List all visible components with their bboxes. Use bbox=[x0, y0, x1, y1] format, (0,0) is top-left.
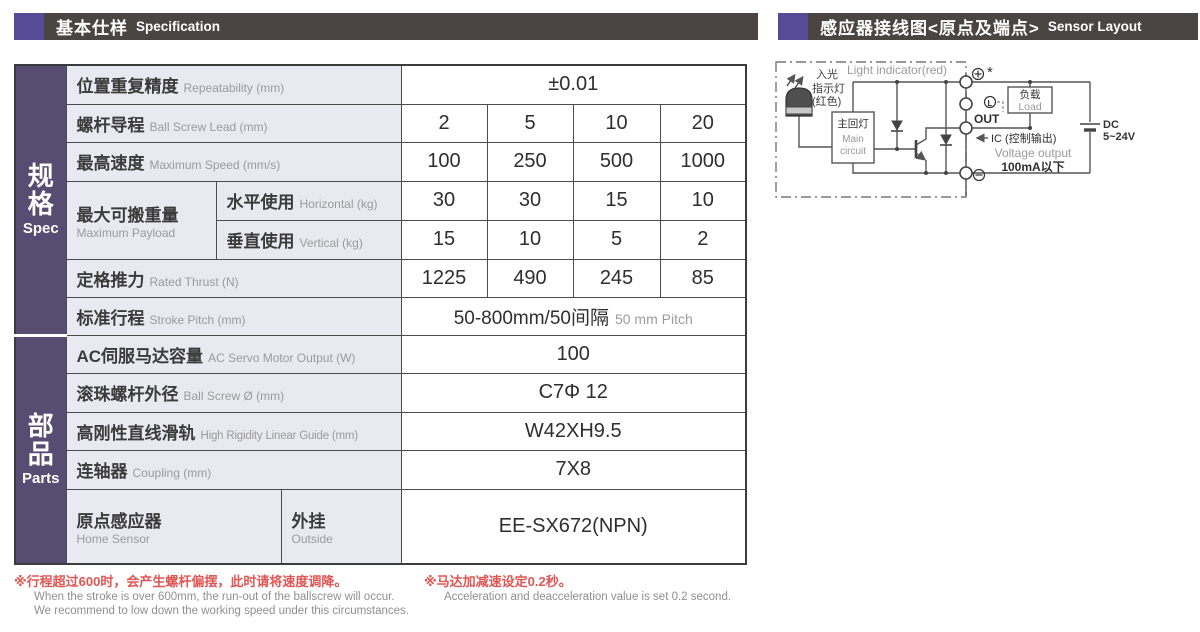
led-label-line1: 入光 bbox=[816, 67, 838, 81]
header-title-zh: 感应器接线图<原点及端点> bbox=[820, 14, 1040, 39]
specification-table-wrap: 规格 Spec 位置重复精度Repeatability (mm) ±0.01 螺… bbox=[14, 64, 747, 565]
label-zh: 位置重复精度 bbox=[77, 77, 179, 96]
value-stroke: 50-800mm/50间隔50 mm Pitch bbox=[401, 297, 746, 335]
label-zh: AC伺服马达容量 bbox=[77, 347, 204, 366]
value-cell: 245 bbox=[573, 259, 660, 297]
sidebar-parts: 部品 Parts bbox=[15, 335, 66, 564]
light-indicator-label: Light indicator(red) bbox=[847, 63, 947, 77]
row-label-max-speed: 最高速度Maximum Speed (mm/s) bbox=[66, 142, 401, 181]
terminal-plus bbox=[960, 76, 972, 88]
value-home-sensor: EE-SX672(NPN) bbox=[401, 489, 746, 564]
led-label-line2: 指示灯 bbox=[812, 81, 845, 95]
stroke-value-en: 50 mm Pitch bbox=[615, 311, 693, 327]
sidebar-spec: 规格 Spec bbox=[15, 65, 66, 335]
label-zh: 螺杆导程 bbox=[77, 116, 145, 135]
terminal-minus bbox=[960, 167, 972, 179]
label-zh: 外挂 bbox=[292, 507, 396, 532]
header-title-zh: 基本仕样 bbox=[56, 14, 128, 39]
label-en: Outside bbox=[292, 532, 401, 546]
main-circuit-box: 主回灯 Main circuit bbox=[832, 112, 874, 163]
purple-accent-square bbox=[14, 13, 44, 40]
footnote-right-en: Acceleration and deacceleration value is… bbox=[444, 590, 731, 604]
footnote-right-red: ※马达加减速设定0.2秒。 bbox=[424, 573, 731, 590]
label-zh: 滚珠螺杆外径 bbox=[77, 385, 179, 404]
label-zh: 高刚性直线滑轨 bbox=[77, 424, 196, 443]
label-en: Home Sensor bbox=[77, 532, 281, 546]
value-servo-output: 100 bbox=[401, 335, 746, 373]
main-circuit-en1: Main bbox=[842, 134, 864, 145]
label-en: Horizontal (kg) bbox=[300, 197, 378, 211]
value-cell: 100 bbox=[401, 142, 487, 181]
ic-label-text: IC (控制输出) bbox=[991, 131, 1056, 145]
label-en: High Rigidity Linear Guide (mm) bbox=[201, 430, 358, 442]
load-box: 负载 Load bbox=[1008, 87, 1052, 113]
value-cell: 250 bbox=[487, 142, 573, 181]
label-zh: 连轴器 bbox=[77, 462, 128, 481]
led-indicator-icon bbox=[786, 88, 812, 116]
header-sensor-layout: 感应器接线图<原点及端点> Sensor Layout bbox=[778, 13, 1198, 40]
sidebar-spec-zh: 规格 bbox=[26, 162, 56, 218]
label-zh: 最高速度 bbox=[77, 154, 145, 173]
row-label-stroke: 标准行程Stroke Pitch (mm) bbox=[66, 297, 401, 335]
load-zh: 负载 bbox=[1020, 88, 1042, 101]
value-coupling: 7X8 bbox=[401, 450, 746, 489]
l-terminal-letter: L bbox=[988, 99, 993, 108]
purple-accent-square bbox=[778, 13, 808, 40]
row-label-ball-screw-dia: 滚珠螺杆外径Ball Screw Ø (mm) bbox=[66, 373, 401, 412]
footnote-left-en2: We recommend to low down the working spe… bbox=[34, 604, 409, 618]
label-en: Vertical (kg) bbox=[300, 236, 363, 250]
header-title-en: Specification bbox=[136, 19, 220, 34]
row-label-home-sensor: 原点感应器Home Sensor bbox=[66, 489, 281, 564]
label-zh: 最大可搬重量 bbox=[77, 201, 211, 226]
sidebar-parts-zh: 部品 bbox=[26, 412, 56, 468]
row-label-max-payload: 最大可搬重量Maximum Payload bbox=[66, 181, 216, 259]
sidebar-spec-en: Spec bbox=[16, 220, 66, 237]
current-limit-label: 100mA以下 bbox=[1001, 160, 1064, 174]
sensor-wiring-diagram: 主回灯 Main circuit * L OUT bbox=[770, 50, 1200, 208]
value-cell: 490 bbox=[487, 259, 573, 297]
sidebar-parts-en: Parts bbox=[16, 470, 66, 487]
label-en: Maximum Speed (mm/s) bbox=[150, 158, 281, 172]
l-terminal-icon: L bbox=[985, 97, 1004, 113]
header-bar: 感应器接线图<原点及端点> Sensor Layout bbox=[808, 13, 1198, 40]
row-label-servo-output: AC伺服马达容量AC Servo Motor Output (W) bbox=[66, 335, 401, 373]
row-label-rated-thrust: 定格推力Rated Thrust (N) bbox=[66, 259, 401, 297]
main-circuit-zh: 主回灯 bbox=[837, 118, 869, 130]
main-circuit-en2: circuit bbox=[840, 146, 866, 157]
value-cell: 1000 bbox=[660, 142, 746, 181]
header-bar: 基本仕样 Specification bbox=[44, 13, 758, 40]
label-en: AC Servo Motor Output (W) bbox=[208, 351, 355, 365]
value-cell: 10 bbox=[487, 220, 573, 259]
value-cell: 30 bbox=[401, 181, 487, 220]
incident-light-arrows-icon bbox=[787, 76, 802, 88]
value-cell: 85 bbox=[660, 259, 746, 297]
terminal-l bbox=[960, 98, 972, 110]
value-cell: 15 bbox=[401, 220, 487, 259]
row-label-coupling: 连轴器Coupling (mm) bbox=[66, 450, 401, 489]
plus-asterisk: * bbox=[987, 64, 993, 81]
label-zh: 标准行程 bbox=[77, 309, 145, 328]
value-cell: 2 bbox=[660, 220, 746, 259]
row-label-vertical: 垂直使用Vertical (kg) bbox=[216, 220, 401, 259]
label-en: Maximum Payload bbox=[77, 226, 216, 240]
footnote-left: ※行程超过600时，会产生螺杆偏摆，此时请将速度调降。 When the str… bbox=[14, 573, 409, 618]
row-label-outside: 外挂Outside bbox=[281, 489, 401, 564]
value-cell: 1225 bbox=[401, 259, 487, 297]
label-zh: 水平使用 bbox=[227, 193, 295, 212]
label-en: Stroke Pitch (mm) bbox=[150, 313, 246, 327]
value-repeatability: ±0.01 bbox=[401, 65, 746, 104]
footnote-left-en1: When the stroke is over 600mm, the run-o… bbox=[34, 590, 409, 604]
terminal-out bbox=[960, 122, 972, 134]
value-cell: 15 bbox=[573, 181, 660, 220]
page: 基本仕样 Specification 感应器接线图<原点及端点> Sensor … bbox=[0, 0, 1200, 632]
label-zh: 定格推力 bbox=[77, 271, 145, 290]
row-label-ball-screw-lead: 螺杆导程Ball Screw Lead (mm) bbox=[66, 104, 401, 142]
label-en: Coupling (mm) bbox=[133, 466, 212, 480]
footnote-right: ※马达加减速设定0.2秒。 Acceleration and deacceler… bbox=[424, 573, 731, 604]
row-label-linear-guide: 高刚性直线滑轨High Rigidity Linear Guide (mm) bbox=[66, 412, 401, 450]
value-cell: 10 bbox=[660, 181, 746, 220]
led-label-line3: (红色) bbox=[812, 94, 841, 108]
header-title-en: Sensor Layout bbox=[1048, 19, 1142, 34]
value-ball-screw-dia: C7Φ 12 bbox=[401, 373, 746, 412]
value-cell: 30 bbox=[487, 181, 573, 220]
row-label-repeatability: 位置重复精度Repeatability (mm) bbox=[66, 65, 401, 104]
value-cell: 20 bbox=[660, 104, 746, 142]
label-en: Ball Screw Ø (mm) bbox=[184, 389, 285, 403]
dc-label-line1: DC bbox=[1103, 119, 1119, 131]
value-cell: 2 bbox=[401, 104, 487, 142]
label-en: Repeatability (mm) bbox=[184, 81, 285, 95]
plus-terminal-icon bbox=[973, 69, 984, 80]
out-terminal-label: OUT bbox=[974, 112, 1000, 126]
value-cell: 5 bbox=[487, 104, 573, 142]
ic-output-label: IC (控制输出) bbox=[978, 131, 1056, 145]
footnote-left-red: ※行程超过600时，会产生螺杆偏摆，此时请将速度调降。 bbox=[14, 573, 409, 590]
value-cell: 10 bbox=[573, 104, 660, 142]
minus-terminal-icon bbox=[974, 170, 985, 181]
load-en: Load bbox=[1018, 101, 1042, 113]
label-zh: 垂直使用 bbox=[227, 232, 295, 251]
header-specification: 基本仕样 Specification bbox=[14, 13, 758, 40]
value-cell: 500 bbox=[573, 142, 660, 181]
battery-icon bbox=[1080, 124, 1100, 130]
value-linear-guide: W42XH9.5 bbox=[401, 412, 746, 450]
label-en: Rated Thrust (N) bbox=[150, 275, 239, 289]
label-en: Ball Screw Lead (mm) bbox=[150, 120, 268, 134]
label-zh: 原点感应器 bbox=[77, 507, 276, 532]
dc-label-line2: 5~24V bbox=[1103, 131, 1136, 143]
voltage-output-label: Voltage output bbox=[995, 146, 1072, 160]
row-label-horizontal: 水平使用Horizontal (kg) bbox=[216, 181, 401, 220]
stroke-value-zh: 50-800mm/50间隔 bbox=[454, 308, 609, 329]
value-cell: 5 bbox=[573, 220, 660, 259]
specification-table: 规格 Spec 位置重复精度Repeatability (mm) ±0.01 螺… bbox=[14, 64, 747, 565]
